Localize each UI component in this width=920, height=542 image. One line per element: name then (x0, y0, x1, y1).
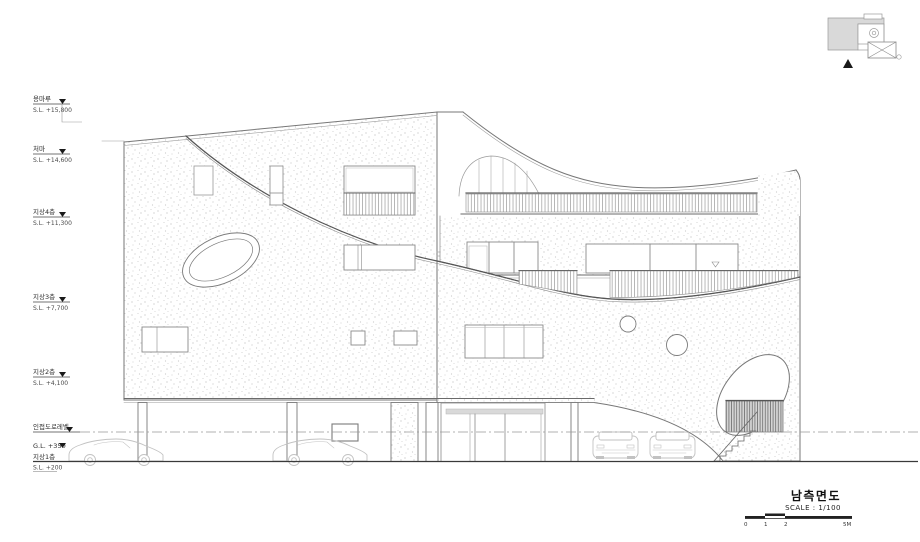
scale-tick: 2 (784, 522, 788, 528)
view-direction-arrow-icon (843, 59, 853, 68)
level-marker-icon (59, 149, 66, 154)
window-small-square (351, 331, 365, 345)
level-name: 지상1층 (33, 452, 55, 461)
building-elevation (69, 112, 804, 466)
entrance-glazing (441, 403, 545, 462)
level-marker-3f: 지상3층 S.L. +7,700 (33, 292, 70, 312)
key-plan-small-circle (897, 55, 901, 59)
wall-sign-box (332, 424, 358, 441)
key-plan-room (858, 24, 884, 44)
level-name: 지상3층 (33, 292, 55, 301)
level-elevation: S.L. +15,800 (33, 107, 72, 114)
arched-wall (459, 156, 540, 196)
key-plan (828, 14, 901, 68)
level-marker-4f: 지상4층 S.L. +11,300 (33, 207, 72, 227)
window-2f-left (142, 327, 188, 352)
level-elevation: S.L. +4,100 (33, 380, 68, 387)
level-marker-icon (59, 372, 66, 377)
porthole-large (667, 335, 688, 356)
right-roof-curve-inner (463, 115, 794, 191)
window-3f-long (586, 244, 738, 273)
graphic-scale-bar: 0 1 2 5M (744, 514, 852, 529)
level-elevation: S.L. +200 (33, 465, 63, 472)
level-name: 지상2층 (33, 367, 55, 376)
level-elevation: S.L. +11,300 (33, 220, 72, 227)
balcony-window-4f (344, 166, 415, 215)
level-marker-ridge: 용마루 S.L. +15,800 (33, 94, 82, 122)
level-name: 지상4층 (33, 207, 55, 216)
car-front-view (593, 432, 638, 459)
right-roof-curve (463, 112, 796, 188)
wall-band-3f-right (758, 171, 800, 216)
level-marker-gl: G.L. +350 (33, 442, 66, 450)
window-small-rect (394, 331, 417, 345)
window-strip-3f-left (344, 245, 415, 270)
level-name: 처마 (33, 144, 45, 153)
window-small-upper (194, 166, 213, 195)
level-marker-icon (59, 297, 66, 302)
window-3f-left (467, 242, 538, 273)
level-marker-adjacent-road: 인접도로레벨 (33, 422, 80, 432)
level-marker-icon (59, 212, 66, 217)
level-name: 용마루 (33, 94, 51, 103)
car-front-view (650, 432, 695, 459)
window-strip-2f-mid (465, 325, 543, 358)
level-marker-eave: 처마 S.L. +14,600 (33, 144, 72, 164)
scale-tick: 0 (744, 522, 748, 528)
drawing-title: 남측면도 (791, 488, 841, 503)
scale-tick: 1 (764, 522, 768, 528)
level-markers: 용마루 S.L. +15,800 처마 S.L. +14,600 지상4층 S.… (33, 94, 82, 472)
level-marker-2f: 지상2층 S.L. +4,100 (33, 367, 70, 387)
key-plan-roof-strip (864, 14, 882, 19)
window-vertical (270, 166, 283, 205)
south-elevation-drawing: 용마루 S.L. +15,800 처마 S.L. +14,600 지상4층 S.… (0, 0, 920, 542)
porthole-small (620, 316, 636, 332)
level-name: 인접도로레벨 (33, 422, 69, 431)
level-elevation: S.L. +7,700 (33, 305, 68, 312)
ground-floor (124, 399, 594, 462)
elevation-sheet: 용마루 S.L. +15,800 처마 S.L. +14,600 지상4층 S.… (0, 0, 920, 542)
drawing-scale: SCALE : 1/100 (785, 504, 841, 512)
title-block: 남측면도 SCALE : 1/100 0 1 2 5M (744, 488, 852, 528)
level-elevation: S.L. +14,600 (33, 157, 72, 164)
terrace-railing-4f (461, 193, 798, 217)
level-marker-icon (59, 99, 66, 104)
stair-railing-panel (726, 401, 783, 432)
scale-tick: 5M (843, 522, 851, 528)
